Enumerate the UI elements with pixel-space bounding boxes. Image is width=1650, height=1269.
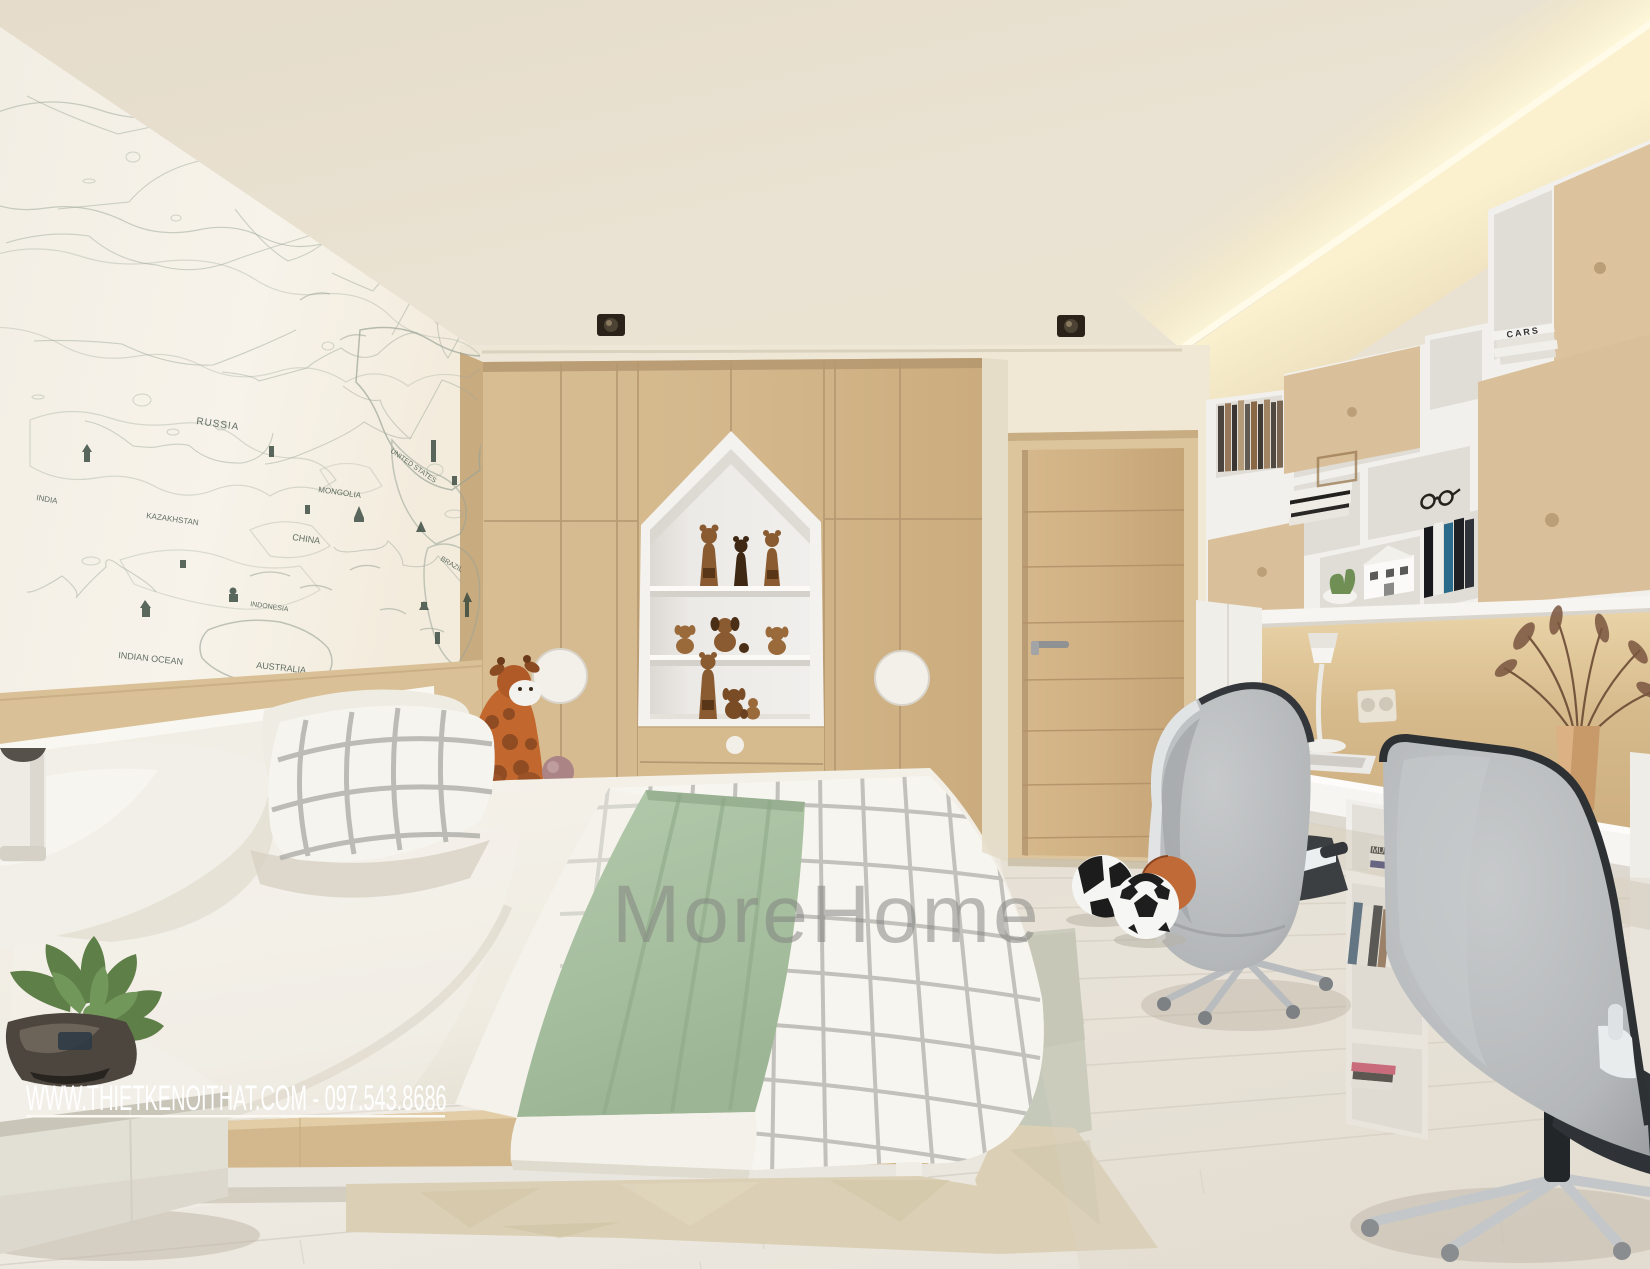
svg-text:WWW.THIETKENOITHAT.COM - 097.5: WWW.THIETKENOITHAT.COM - 097.543.8686 [26, 1079, 447, 1118]
svg-text:MoreHome: MoreHome [612, 869, 1042, 960]
